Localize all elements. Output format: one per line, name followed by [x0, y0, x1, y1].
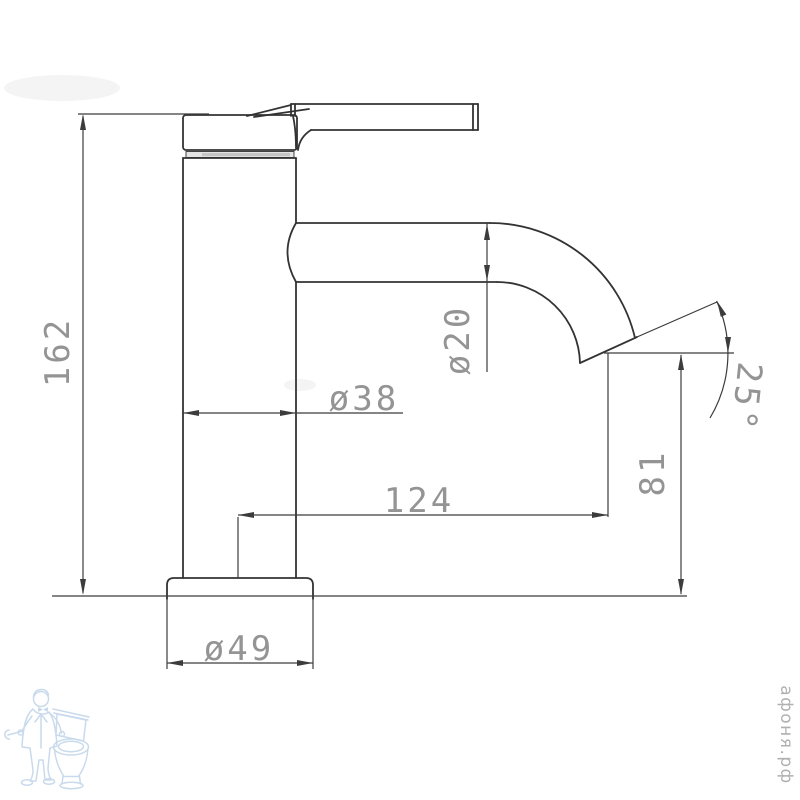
dim-outlet-height: 81 [633, 450, 673, 497]
plumber-with-toilet-icon [5, 689, 89, 788]
collar-ring [186, 152, 294, 158]
handle-lever [183, 104, 478, 150]
dim-total-height: 162 [38, 317, 78, 387]
dim-base-diameter: ø49 [204, 629, 274, 669]
site-watermark-text: афоня.рф [776, 685, 796, 784]
dim-body-diameter: ø38 [329, 379, 399, 419]
dimension-arrows [80, 114, 731, 666]
dim-outlet-angle: 25° [722, 360, 769, 434]
faucet-drawing-svg: 162 ø20 ø38 124 81 25° ø49 афоня.рф [0, 0, 800, 800]
dim-spout-reach: 124 [384, 481, 454, 521]
faucet-technical-drawing: 162 ø20 ø38 124 81 25° ø49 афоня.рф [0, 0, 800, 800]
dim-spout-diameter: ø20 [438, 305, 478, 375]
